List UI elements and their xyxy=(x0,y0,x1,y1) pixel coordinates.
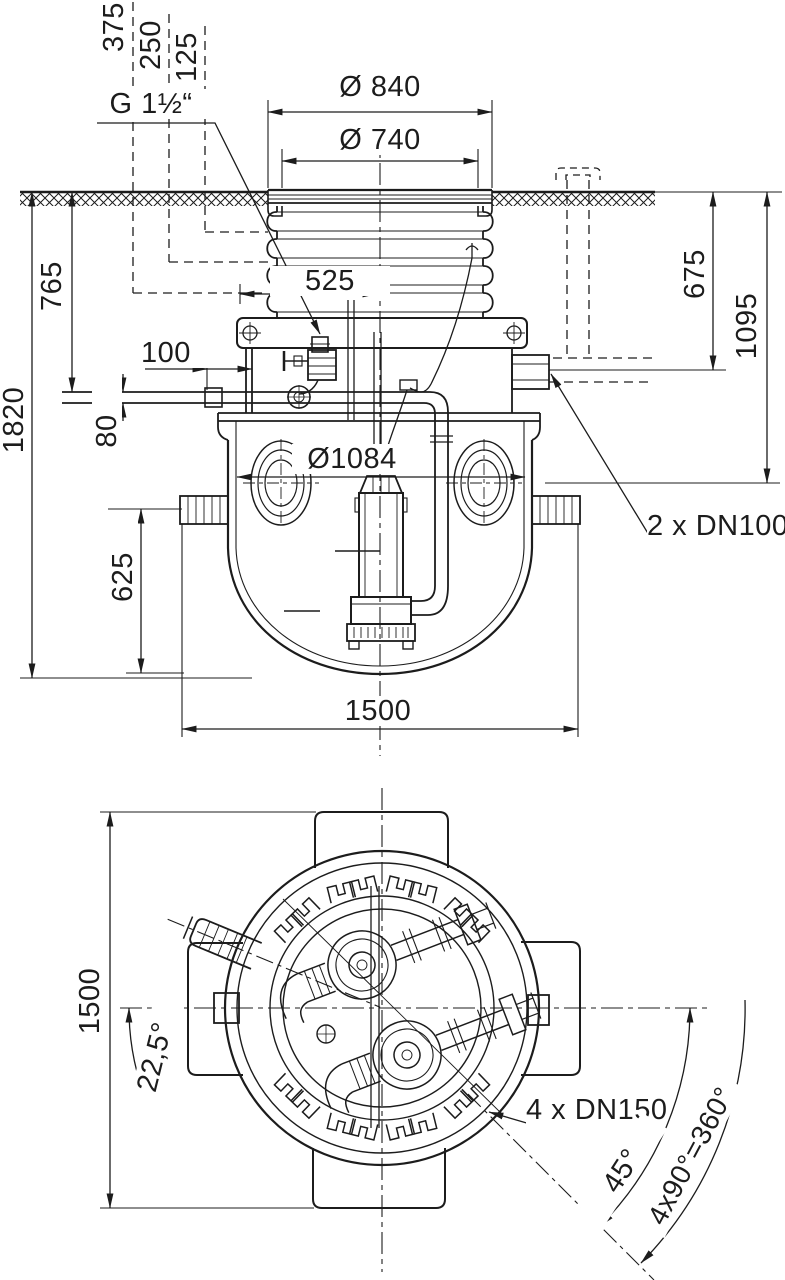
dim-outlet-stub-length: 100 xyxy=(106,338,226,368)
dim-inlet-depth-2: 1095 xyxy=(732,266,762,386)
dim-inlet-depth-1: 675 xyxy=(680,214,710,334)
dim-riser-height-375: 375 xyxy=(99,0,129,87)
plan-view xyxy=(162,812,580,1208)
dim-total-depth: 1820 xyxy=(0,360,29,480)
dim-tank-inner-dia: Ø1084 xyxy=(292,444,412,474)
dim-cover-outer-dia: Ø 840 xyxy=(320,72,440,102)
label-vent-connection: G 1½“ xyxy=(91,89,211,119)
drawing-linework xyxy=(0,0,785,1280)
dim-outlet-drop: 80 xyxy=(92,371,122,491)
dim-depth-to-outlet: 765 xyxy=(37,226,67,346)
label-inlet-connections: 2 x DN100 xyxy=(647,511,785,541)
dim-sump-bottom-height: 625 xyxy=(108,517,138,637)
technical-drawing-sheet: 375 250 125 G 1½“ Ø 840 Ø 740 525 765 18… xyxy=(0,0,785,1280)
dim-outlet-offset: 525 xyxy=(270,266,390,296)
dim-tank-overall-width: 1500 xyxy=(318,696,438,726)
dim-plan-overall-width: 1500 xyxy=(75,941,105,1061)
dim-cover-clear-dia: Ø 740 xyxy=(320,125,440,155)
